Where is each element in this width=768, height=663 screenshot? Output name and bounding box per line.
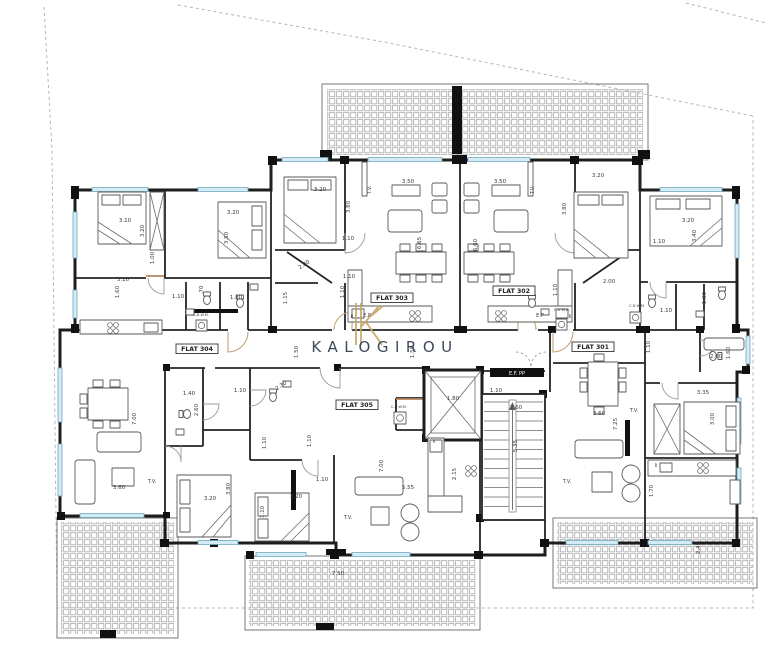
annotation-label: T.V. <box>530 185 536 195</box>
dimension-label: 2.60 <box>510 405 523 411</box>
dimension-label: 1.10 <box>343 274 356 280</box>
dimension-label: 2.60 <box>194 403 200 416</box>
dimension-label: 1.15 <box>283 291 289 304</box>
annotation-label: C.D W.M. <box>554 308 570 312</box>
dimension-label: 3.20 <box>290 494 303 500</box>
dimension-label: 5.35 <box>513 439 519 452</box>
flat-label-text: FLAT 302 <box>498 288 530 295</box>
dimension-label: 3.80 <box>226 482 232 495</box>
dimension-label: 3.10 <box>117 277 130 283</box>
dimension-label: 2.45 <box>696 541 702 554</box>
dimension-label: 7.25 <box>613 417 619 430</box>
dimension-label: 1.50 <box>294 345 300 358</box>
bed <box>684 402 740 454</box>
dimension-label: 3.60 <box>113 485 126 491</box>
dimension-label: 1.10 <box>316 477 329 483</box>
annotation-label: C.D W.M. <box>629 304 645 308</box>
flat-label-text: FLAT 304 <box>181 346 213 353</box>
flat-label: FLAT 303 <box>371 293 413 303</box>
dimension-label: 3.20 <box>314 187 327 193</box>
dimension-label: 3.20 <box>592 173 605 179</box>
dimension-label: .70 <box>199 285 205 294</box>
dimension-label: 5.55 <box>402 485 415 491</box>
dimension-label: 3.35 <box>697 390 710 396</box>
dimension-label: 1.10 <box>490 388 503 394</box>
dimension-label: 1.10 <box>234 388 247 394</box>
terrace-top <box>322 84 648 160</box>
dimension-label: 1.70 <box>649 484 655 497</box>
dimension-label: 1.10 <box>307 434 313 447</box>
dimension-label: 2.60 <box>710 354 723 360</box>
dimension-label: 3.60 <box>593 411 606 417</box>
flat-label: FLAT 301 <box>572 342 614 352</box>
dimension-label: 3.50 <box>402 179 415 185</box>
dimension-label: 1.10 <box>342 236 355 242</box>
annotation-label: T.V. <box>629 408 639 414</box>
dimension-label: 1.10 <box>653 239 666 245</box>
dimension-label: 1.10 <box>646 340 652 353</box>
annotation-label: E.P <box>536 313 544 319</box>
dimension-label: 1.10 <box>260 505 266 518</box>
dimension-label: 3.20 <box>682 218 695 224</box>
annotation-label: R <box>351 314 354 319</box>
dimension-label: 3.80 <box>346 200 352 213</box>
bed <box>574 192 628 258</box>
dimension-label: 3.40 <box>692 229 698 242</box>
dimension-label: 2.15 <box>452 467 458 480</box>
dimension-label: 1.10 <box>262 436 268 449</box>
dimension-label: 1.80 <box>230 295 243 301</box>
dimension-label: 1.90 <box>702 291 708 304</box>
dimension-label: 1.40 <box>183 391 196 397</box>
dimension-label: 1.60 <box>726 346 732 359</box>
annotation-label: R <box>569 314 572 319</box>
annotation-label: T.V. <box>147 479 157 485</box>
dimension-label: 6.65 <box>417 236 423 249</box>
balcony-bottom-center <box>245 556 480 630</box>
dimension-label: 3.20 <box>227 210 240 216</box>
bed <box>177 475 231 537</box>
dimension-label: 1.10 <box>660 308 673 314</box>
annotation-label: T.V. <box>367 185 373 195</box>
flat-label: FLAT 302 <box>493 286 535 296</box>
dimension-label: 2.00 <box>603 279 616 285</box>
dimension-label: 3.00 <box>710 412 716 425</box>
bed <box>218 202 266 258</box>
balcony-bottom-right <box>553 518 757 588</box>
dimension-label: 6.60 <box>473 238 479 251</box>
watermark-text: KALOGIROU <box>311 338 458 356</box>
dimension-label: 3.20 <box>204 496 217 502</box>
annotation-label: C.D W.M. <box>391 405 407 409</box>
annotation-label: R <box>655 463 658 468</box>
annotation-label: C.D W.M. <box>193 313 209 317</box>
dimension-label: 1.10 <box>172 294 185 300</box>
annotation-label: R <box>433 439 436 444</box>
dimension-label: 3.50 <box>494 179 507 185</box>
dimension-label: 1.10 <box>553 283 559 296</box>
flat-label-text: FLAT 301 <box>577 344 609 351</box>
bed <box>284 177 336 243</box>
elevator <box>424 370 482 440</box>
dimension-label: 7.00 <box>379 459 385 472</box>
dimension-label: 7.00 <box>132 412 138 425</box>
floor-plan-canvas: KALOGIROU FLAT 301FLAT 302FLAT 303FLAT 3… <box>0 0 768 663</box>
annotation-label: T.V. <box>562 479 572 485</box>
flat-label-text: FLAT 303 <box>376 295 408 302</box>
annotation-label: E.F. PP <box>509 371 525 377</box>
dimension-label: 1.80 <box>447 396 460 402</box>
dimension-label: 1.50 <box>410 345 416 358</box>
annotation-label: T.V. <box>343 515 353 521</box>
dimension-label: 3.50 <box>224 231 230 244</box>
balcony-bottom-left <box>57 518 178 638</box>
floor-plan-page: KALOGIROU FLAT 301FLAT 302FLAT 303FLAT 3… <box>0 0 768 663</box>
dimension-label: 3.80 <box>562 202 568 215</box>
dimension-label: 1.00 <box>150 251 156 264</box>
annotation-label: E.P <box>363 313 371 319</box>
dimension-label: 1.60 <box>115 285 121 298</box>
flat-label-text: FLAT 305 <box>341 402 373 409</box>
dimension-label: 1.10 <box>340 285 346 298</box>
dimension-label: 3.20 <box>140 224 146 237</box>
dimension-label: 3.10 <box>119 218 132 224</box>
flat-label: FLAT 305 <box>336 400 378 410</box>
dimension-label: 7.50 <box>332 571 345 577</box>
flat-label: FLAT 304 <box>176 344 218 354</box>
